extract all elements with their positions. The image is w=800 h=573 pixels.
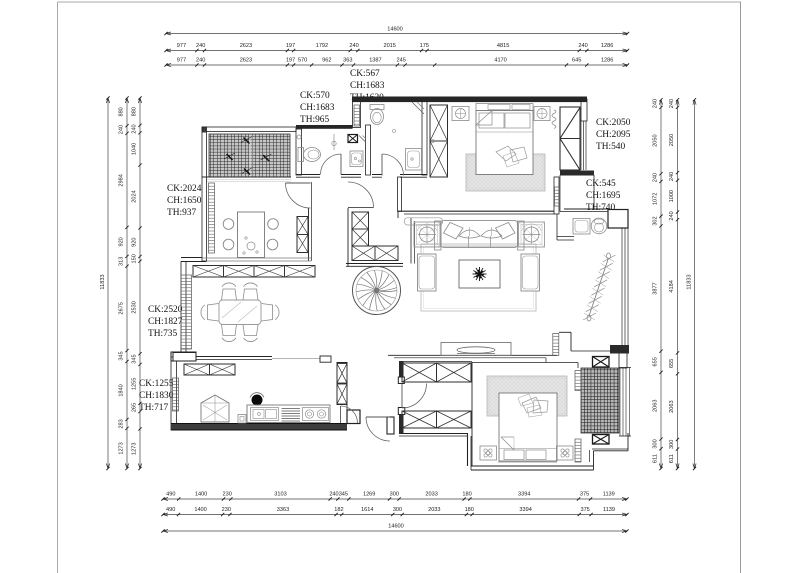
svg-text:2984: 2984 (119, 174, 125, 186)
svg-text:977: 977 (177, 58, 186, 64)
svg-text:611: 611 (653, 454, 659, 463)
svg-text:CK:1255: CK:1255 (139, 379, 174, 389)
svg-text:TH:540: TH:540 (596, 142, 625, 152)
svg-text:TH:717: TH:717 (139, 403, 168, 413)
svg-text:11833: 11833 (687, 274, 693, 289)
svg-text:345: 345 (132, 354, 138, 363)
svg-text:240: 240 (132, 124, 138, 133)
svg-text:CH:2095: CH:2095 (596, 130, 631, 140)
svg-text:2675: 2675 (119, 302, 125, 314)
svg-text:2050: 2050 (669, 134, 675, 146)
svg-text:302: 302 (653, 216, 659, 225)
svg-text:240: 240 (669, 211, 675, 220)
svg-text:230: 230 (222, 492, 231, 498)
svg-text:1255: 1255 (132, 378, 138, 390)
svg-text:345: 345 (339, 492, 348, 498)
svg-text:300: 300 (653, 439, 659, 448)
svg-text:880: 880 (119, 107, 125, 116)
svg-text:240: 240 (196, 43, 205, 49)
svg-text:920: 920 (119, 237, 125, 246)
svg-text:313: 313 (119, 257, 125, 266)
svg-text:375: 375 (580, 492, 589, 498)
svg-text:4170: 4170 (494, 58, 506, 64)
svg-text:977: 977 (177, 43, 186, 49)
svg-text:4184: 4184 (669, 280, 675, 292)
svg-text:2063: 2063 (653, 399, 659, 411)
svg-text:300: 300 (393, 507, 402, 513)
svg-text:175: 175 (420, 43, 429, 49)
svg-text:CH:1695: CH:1695 (586, 191, 621, 201)
svg-text:345: 345 (119, 351, 125, 360)
svg-text:230: 230 (222, 507, 231, 513)
svg-text:1000: 1000 (669, 190, 675, 202)
svg-text:CH:1827: CH:1827 (148, 317, 183, 327)
svg-text:1273: 1273 (119, 442, 125, 454)
svg-text:2623: 2623 (240, 58, 252, 64)
svg-text:611: 611 (669, 454, 675, 463)
svg-text:655: 655 (653, 357, 659, 366)
svg-text:240: 240 (196, 58, 205, 64)
svg-text:1273: 1273 (132, 443, 138, 455)
svg-text:1840: 1840 (119, 384, 125, 396)
svg-text:TH:965: TH:965 (300, 115, 329, 125)
svg-text:920: 920 (132, 238, 138, 247)
svg-text:CH:1830: CH:1830 (139, 391, 174, 401)
svg-text:TH:937: TH:937 (167, 208, 196, 218)
svg-text:240: 240 (119, 125, 125, 134)
svg-text:240: 240 (669, 99, 675, 108)
svg-text:TH:735: TH:735 (148, 329, 177, 339)
svg-text:363: 363 (343, 58, 352, 64)
svg-text:245: 245 (397, 58, 406, 64)
svg-text:3394: 3394 (519, 507, 531, 513)
svg-text:2015: 2015 (383, 43, 395, 49)
svg-text:283: 283 (119, 419, 125, 428)
svg-text:1792: 1792 (316, 43, 328, 49)
svg-text:240: 240 (669, 172, 675, 181)
svg-text:2033: 2033 (425, 492, 437, 498)
svg-text:3103: 3103 (274, 492, 286, 498)
svg-text:2033: 2033 (428, 507, 440, 513)
svg-text:14600: 14600 (387, 27, 403, 33)
svg-text:CK:570: CK:570 (300, 91, 330, 101)
svg-text:655: 655 (669, 359, 675, 368)
svg-text:2050: 2050 (653, 134, 659, 146)
svg-text:2623: 2623 (240, 43, 252, 49)
svg-text:14600: 14600 (388, 524, 404, 530)
svg-text:2063: 2063 (669, 400, 675, 412)
svg-text:1139: 1139 (603, 507, 615, 513)
svg-text:197: 197 (286, 58, 295, 64)
svg-text:180: 180 (462, 492, 471, 498)
svg-text:1387: 1387 (369, 58, 381, 64)
svg-text:962: 962 (322, 58, 331, 64)
svg-text:CK:2050: CK:2050 (596, 118, 631, 128)
svg-text:490: 490 (166, 492, 175, 498)
svg-text:CK:2520: CK:2520 (148, 305, 183, 315)
svg-text:CH:1683: CH:1683 (350, 81, 385, 91)
svg-text:1072: 1072 (653, 193, 659, 205)
svg-text:3394: 3394 (518, 492, 530, 498)
svg-text:1400: 1400 (195, 492, 207, 498)
svg-text:300: 300 (669, 440, 675, 449)
svg-text:2530: 2530 (132, 301, 138, 313)
svg-text:490: 490 (166, 507, 175, 513)
svg-text:150: 150 (132, 254, 138, 263)
svg-text:197: 197 (286, 43, 295, 49)
svg-text:180: 180 (465, 507, 474, 513)
svg-text:182: 182 (334, 507, 343, 513)
svg-text:570: 570 (298, 58, 307, 64)
svg-text:1040: 1040 (132, 143, 138, 155)
svg-text:240: 240 (653, 99, 659, 108)
svg-text:645: 645 (572, 58, 581, 64)
svg-text:3363: 3363 (277, 507, 289, 513)
svg-text:2024: 2024 (132, 190, 138, 202)
svg-text:1269: 1269 (363, 492, 375, 498)
svg-text:240: 240 (329, 492, 338, 498)
svg-text:1400: 1400 (194, 507, 206, 513)
svg-text:240: 240 (578, 43, 587, 49)
svg-text:240: 240 (349, 43, 358, 49)
svg-text:265: 265 (132, 403, 138, 412)
svg-text:CH:1683: CH:1683 (300, 103, 335, 113)
svg-text:880: 880 (132, 107, 138, 116)
svg-text:3877: 3877 (653, 282, 659, 294)
svg-text:CK:545: CK:545 (586, 179, 616, 189)
svg-text:11833: 11833 (100, 274, 106, 289)
svg-text:CK:567: CK:567 (350, 69, 380, 79)
svg-text:240: 240 (653, 173, 659, 182)
svg-text:1286: 1286 (601, 58, 613, 64)
svg-text:CK:2024: CK:2024 (167, 184, 202, 194)
svg-text:300: 300 (390, 492, 399, 498)
svg-text:1139: 1139 (603, 492, 615, 498)
svg-text:4815: 4815 (497, 43, 509, 49)
svg-text:1286: 1286 (601, 43, 613, 49)
svg-text:CH:1650: CH:1650 (167, 196, 202, 206)
svg-text:1614: 1614 (361, 507, 373, 513)
svg-text:375: 375 (580, 507, 589, 513)
